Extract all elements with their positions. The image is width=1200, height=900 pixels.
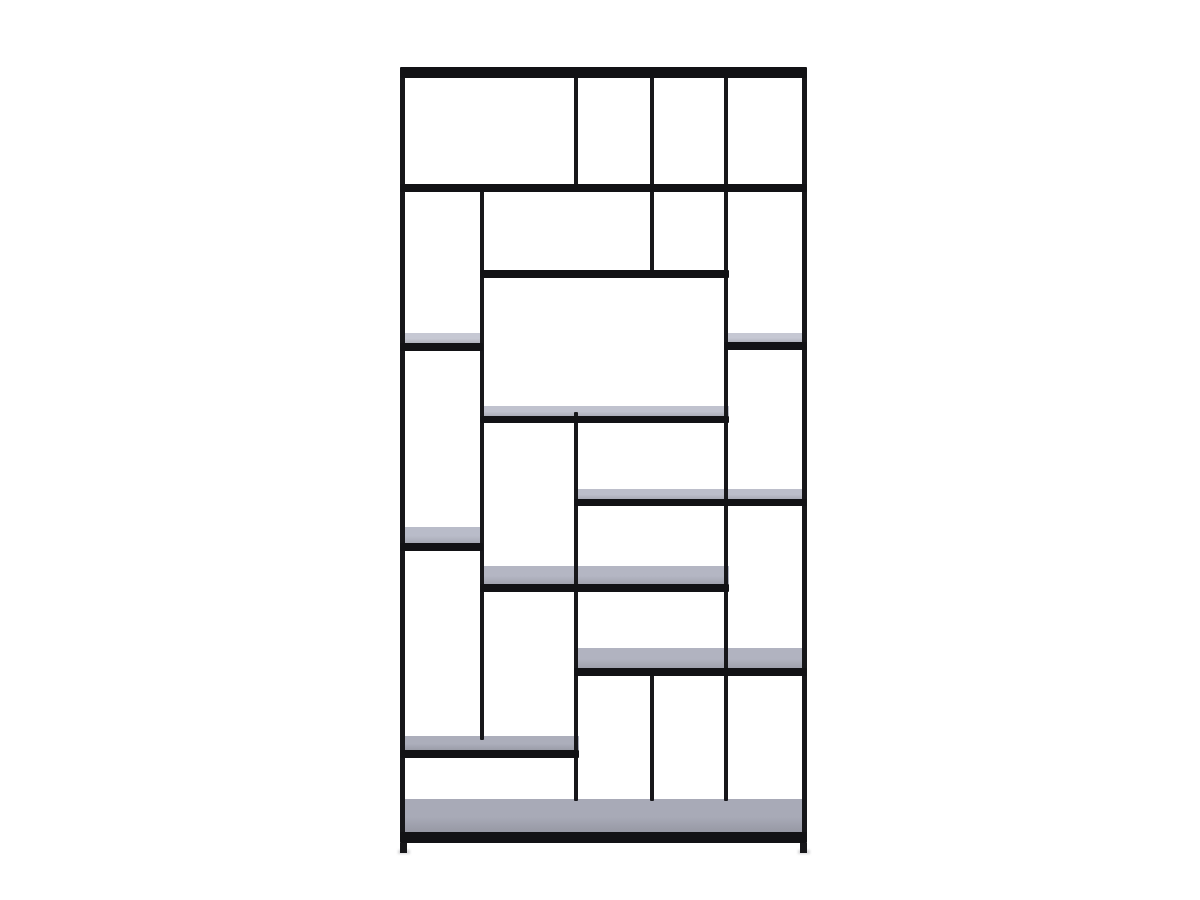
left-small-shelf-upper-edge [400, 343, 483, 351]
third-shelf [480, 270, 729, 278]
right-wide-shelf-lower-edge [574, 668, 807, 676]
left-wide-shelf-bottom-edge [400, 750, 579, 758]
top-shelf [400, 67, 807, 78]
center-wide-shelf-top [480, 406, 729, 416]
left-small-shelf-lower-edge [400, 543, 483, 551]
left-wide-shelf-bottom-top [400, 736, 579, 750]
center-lower-post [574, 412, 578, 801]
shelving-unit [0, 0, 1200, 900]
right-wide-shelf-lower-top [574, 648, 807, 668]
upper-mid-divider-post [650, 76, 654, 274]
left-foot [400, 843, 407, 853]
product-photo [0, 0, 1200, 900]
bottom-shelf-top [400, 799, 807, 832]
left-small-shelf-upper-top [400, 333, 483, 343]
bottom-shelf-edge [400, 832, 807, 843]
center-wide-shelf-lower-edge [480, 584, 729, 592]
center-wide-shelf-edge [480, 416, 729, 423]
second-shelf [400, 184, 807, 192]
left-small-shelf-lower-top [400, 527, 483, 543]
right-small-shelf-top [724, 333, 807, 342]
right-small-shelf-edge [724, 342, 807, 350]
lower-mid-divider-post [650, 672, 654, 801]
right-wide-shelf-upper-top [574, 489, 807, 499]
right-wide-shelf-upper-edge [574, 499, 807, 506]
top-row-divider-post [574, 76, 578, 186]
center-wide-shelf-lower-top [480, 566, 729, 584]
right-foot [800, 843, 807, 853]
